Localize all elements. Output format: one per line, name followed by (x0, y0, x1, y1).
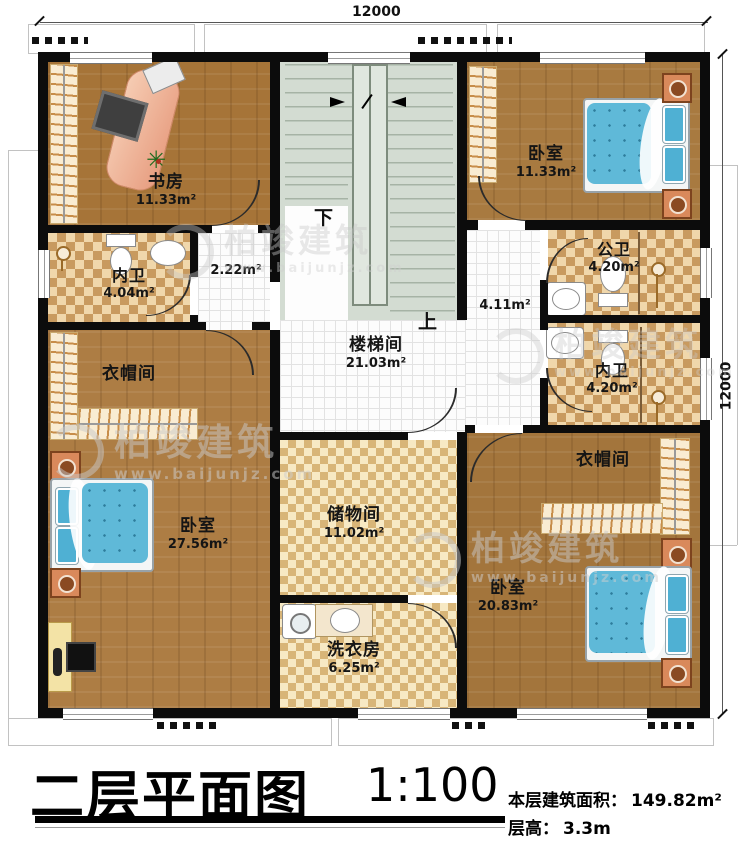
eave-outline (710, 165, 737, 166)
wall (457, 52, 467, 320)
speaker-icon (53, 648, 62, 676)
dashed-roofline (157, 722, 221, 729)
wall (540, 378, 548, 425)
stair-rail (352, 64, 388, 306)
stair-break-arrow (391, 97, 406, 107)
wardrobe-closet-right-row (541, 503, 663, 534)
wall (280, 432, 408, 440)
tv-icon (66, 642, 96, 672)
stair-up-label: 上 (418, 307, 437, 334)
hall-floor-right (465, 230, 540, 425)
toilet-tank-icon (598, 293, 628, 307)
bed-bedroom-tr (583, 98, 690, 193)
eave-outline (8, 150, 9, 718)
window (540, 52, 645, 64)
room-label-bath-inner-right: 内卫 4.20m² (576, 361, 648, 397)
dimension-tick (701, 16, 712, 27)
wardrobe-bedroom-tr (469, 66, 497, 183)
sink-icon (552, 288, 580, 310)
floor-area-value: 149.82m² (631, 791, 722, 811)
nightstand-ring (669, 546, 687, 564)
wall (38, 52, 48, 250)
towel-rod (61, 259, 63, 271)
wall (410, 52, 540, 62)
nightstand-ring (669, 196, 687, 214)
dimension-label-right: 12000 (718, 362, 734, 411)
wardrobe-closet-left-row (78, 408, 198, 440)
towel-ring-icon (651, 390, 666, 405)
sink-icon (150, 240, 186, 266)
stair-treads (285, 184, 348, 204)
room-label-study: 书房 11.33m² (116, 172, 216, 210)
bed-bedroom-br (585, 566, 692, 662)
wall (700, 420, 710, 718)
room-label-bedroom-br: 卧室 20.83m² (468, 578, 548, 616)
floor-plan-sheet: 12000 12000 下 上 ✳ (0, 0, 750, 841)
dashed-roofline (32, 37, 88, 44)
title-block: 二层平面图 1:100 本层建筑面积：149.82m² 层高：3.3m (0, 756, 750, 841)
towel-rod (656, 274, 658, 308)
eave-outline (497, 24, 705, 54)
stair-down-label: 下 (314, 203, 333, 230)
hall-label-small: 2.22m² (205, 263, 267, 279)
eave-outline (710, 545, 737, 546)
dashed-roofline (452, 722, 486, 729)
floor-height-row: 层高：3.3m (508, 814, 611, 839)
room-label-closet-right: 衣帽间 (566, 450, 640, 471)
nightstand (662, 189, 692, 219)
room-label-bath-public: 公卫 4.20m² (578, 240, 650, 276)
window (358, 708, 450, 720)
towel-rod (656, 402, 658, 426)
toilet-tank-icon (106, 234, 136, 247)
wall (540, 315, 710, 323)
nightstand (662, 73, 692, 103)
title-underline-thin (35, 827, 505, 828)
window (328, 52, 410, 64)
wall (48, 322, 198, 330)
nightstand-ring (58, 459, 76, 477)
nightstand (50, 568, 81, 598)
wall (252, 322, 270, 330)
room-label-storage: 储物间 11.02m² (314, 505, 394, 543)
dashed-roofline (418, 37, 512, 44)
floor-height-value: 3.3m (563, 819, 611, 839)
pillow (666, 575, 688, 613)
wall (270, 52, 280, 282)
title-underline (35, 816, 505, 823)
hall-label-right: 4.11m² (470, 298, 540, 314)
wall (152, 52, 328, 62)
wall (457, 432, 467, 708)
wall (48, 225, 212, 233)
room-label-closet-left: 衣帽间 (92, 364, 166, 385)
window (700, 248, 712, 298)
nightstand-ring (669, 80, 687, 98)
dimension-line-top (40, 22, 708, 23)
wall (258, 225, 270, 233)
pillow (663, 146, 685, 183)
nightstand-ring (58, 575, 76, 593)
wardrobe-closet-left (50, 332, 78, 440)
nightstand (661, 658, 692, 688)
wardrobe-study (50, 64, 78, 224)
wall (525, 220, 710, 230)
mattress (82, 483, 148, 563)
towel-ring-icon (56, 246, 71, 261)
wall (38, 298, 48, 718)
sink-icon (330, 608, 360, 633)
pillow (666, 616, 688, 654)
plant-center (156, 159, 161, 164)
room-label-stairwell: 楼梯间 21.03m² (330, 335, 422, 373)
bed-bedroom-bl (50, 478, 154, 572)
washer-drum (290, 613, 311, 634)
dashed-roofline (648, 722, 698, 729)
hall-floor-small (198, 233, 270, 330)
towel-ring-icon (651, 262, 666, 277)
floor-area-row: 本层建筑面积：149.82m² (508, 786, 722, 811)
wall (198, 322, 206, 330)
wall (465, 425, 475, 433)
wall (450, 708, 517, 718)
stair-break-arrow (330, 97, 345, 107)
window (38, 250, 50, 298)
wall (465, 220, 478, 230)
window (63, 708, 153, 720)
wall (190, 233, 198, 277)
wall (523, 425, 710, 433)
room-label-bedroom-bl: 卧室 27.56m² (158, 516, 238, 554)
eave-outline (8, 150, 38, 151)
wall (190, 315, 198, 330)
window (700, 358, 712, 420)
nightstand-ring (669, 665, 687, 683)
wardrobe-closet-right (660, 438, 690, 535)
toilet-tank-icon (598, 330, 628, 343)
wall (280, 595, 408, 603)
stair-treads (390, 184, 455, 314)
window (517, 708, 647, 720)
eave-outline (737, 165, 738, 545)
room-label-laundry: 洗衣房 6.25m² (314, 640, 394, 678)
wall (153, 708, 358, 718)
wall (700, 298, 710, 358)
room-label-bath-inner-left: 内卫 4.04m² (92, 266, 166, 302)
sheet-scale: 1:100 (366, 758, 499, 812)
wall (700, 52, 710, 248)
wall (270, 330, 280, 708)
room-label-bedroom-tr: 卧室 11.33m² (496, 144, 596, 182)
sink-icon (551, 332, 579, 354)
window (70, 52, 152, 64)
pillow (663, 106, 685, 143)
dimension-label-top: 12000 (352, 4, 401, 20)
